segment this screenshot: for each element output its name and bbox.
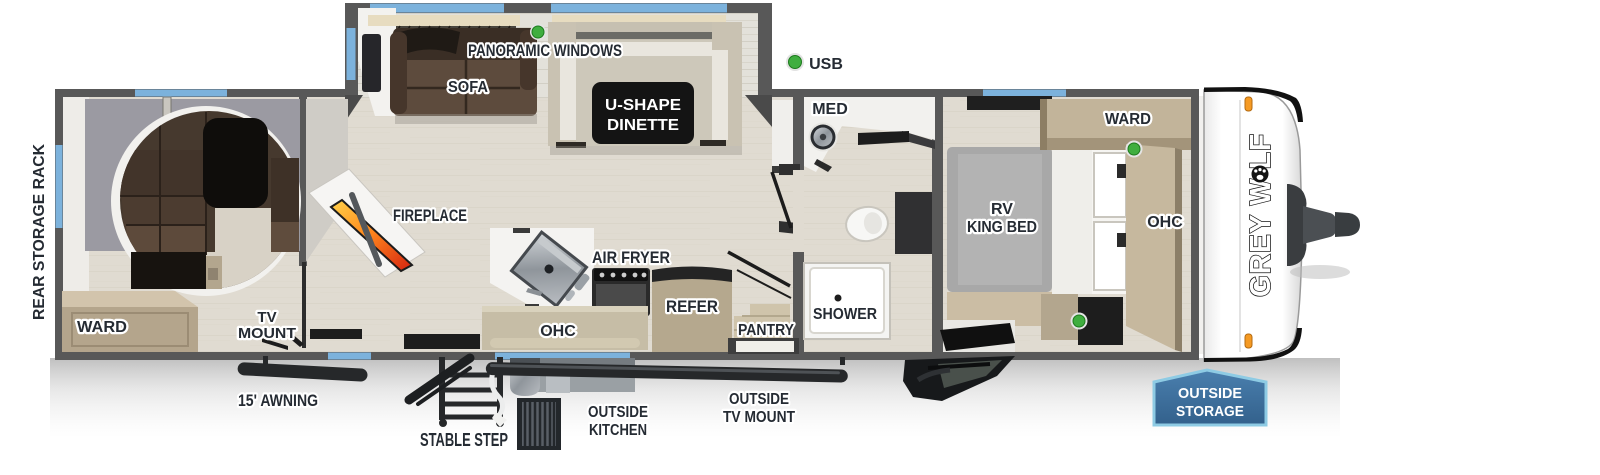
svg-text:STABLE STEP: STABLE STEP (420, 430, 508, 450)
svg-text:TV MOUNT: TV MOUNT (723, 409, 795, 426)
svg-text:U-SHAPE: U-SHAPE (605, 97, 681, 114)
svg-text:PANORAMIC WINDOWS: PANORAMIC WINDOWS (468, 41, 622, 60)
svg-text:REFER: REFER (666, 297, 718, 316)
svg-text:SHOWER: SHOWER (813, 306, 877, 323)
svg-text:15' AWNING: 15' AWNING (238, 391, 318, 410)
svg-text:PANTRY: PANTRY (738, 322, 794, 339)
svg-text:MOUNT: MOUNT (238, 325, 296, 342)
svg-text:OUTSIDE: OUTSIDE (588, 404, 648, 421)
svg-text:WARD: WARD (77, 319, 127, 336)
svg-text:USB: USB (809, 56, 843, 73)
svg-text:OUTSIDE: OUTSIDE (1178, 385, 1242, 402)
svg-text:SOFA: SOFA (448, 79, 488, 96)
svg-text:TV: TV (257, 309, 276, 326)
svg-text:KING BED: KING BED (967, 219, 1037, 236)
svg-text:AIR FRYER: AIR FRYER (592, 248, 670, 267)
svg-text:STORAGE: STORAGE (1176, 403, 1244, 420)
svg-text:OHC: OHC (540, 323, 576, 340)
svg-text:FIREPLACE: FIREPLACE (393, 206, 467, 225)
svg-text:DINETTE: DINETTE (607, 117, 679, 134)
svg-text:OUTSIDE: OUTSIDE (729, 391, 789, 408)
svg-text:OHC: OHC (1147, 214, 1183, 231)
svg-text:KITCHEN: KITCHEN (589, 422, 647, 439)
svg-text:RV: RV (991, 201, 1013, 218)
svg-text:MED: MED (812, 101, 848, 118)
svg-text:REAR STORAGE RACK: REAR STORAGE RACK (31, 144, 48, 320)
svg-text:GREY W LF: GREY W LF (1245, 133, 1277, 297)
svg-text:WARD: WARD (1105, 111, 1151, 128)
